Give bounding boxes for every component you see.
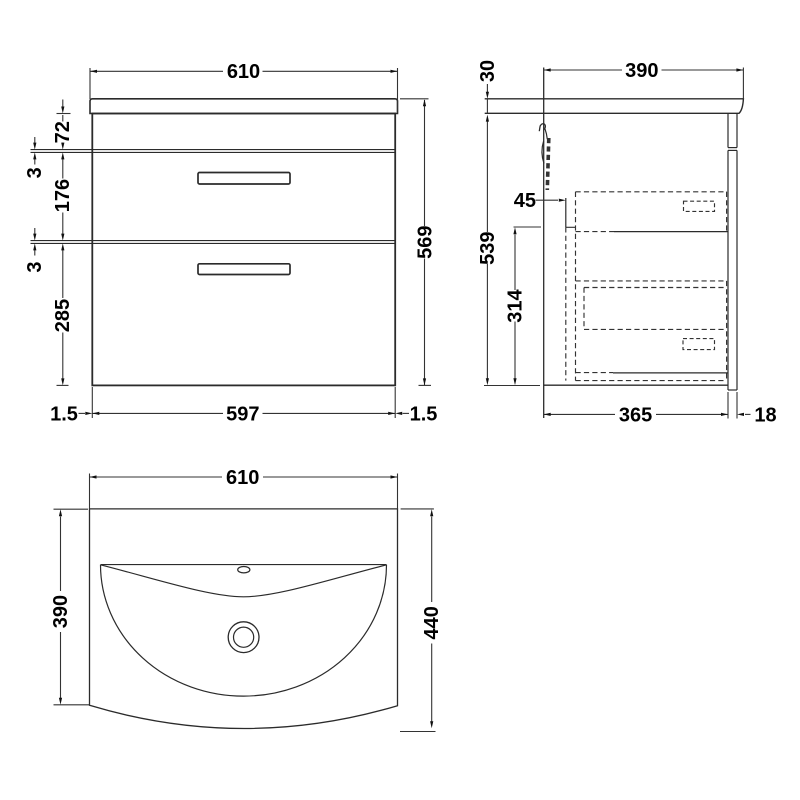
svg-text:30: 30 <box>477 60 499 82</box>
svg-text:1.5: 1.5 <box>50 403 78 425</box>
svg-text:610: 610 <box>227 61 260 83</box>
svg-text:18: 18 <box>754 404 776 426</box>
svg-text:440: 440 <box>421 606 443 639</box>
svg-text:597: 597 <box>226 403 259 425</box>
svg-text:569: 569 <box>415 226 437 259</box>
svg-text:3: 3 <box>24 261 46 272</box>
svg-text:314: 314 <box>504 288 526 322</box>
svg-text:72: 72 <box>52 121 74 143</box>
svg-text:285: 285 <box>52 299 74 332</box>
svg-text:3: 3 <box>24 167 46 178</box>
svg-text:539: 539 <box>477 232 499 265</box>
svg-text:176: 176 <box>52 179 74 212</box>
svg-text:610: 610 <box>226 467 259 489</box>
svg-text:1.5: 1.5 <box>410 403 438 425</box>
svg-text:365: 365 <box>619 404 652 426</box>
svg-text:390: 390 <box>625 60 658 82</box>
svg-text:45: 45 <box>514 190 536 212</box>
svg-text:390: 390 <box>50 595 72 628</box>
